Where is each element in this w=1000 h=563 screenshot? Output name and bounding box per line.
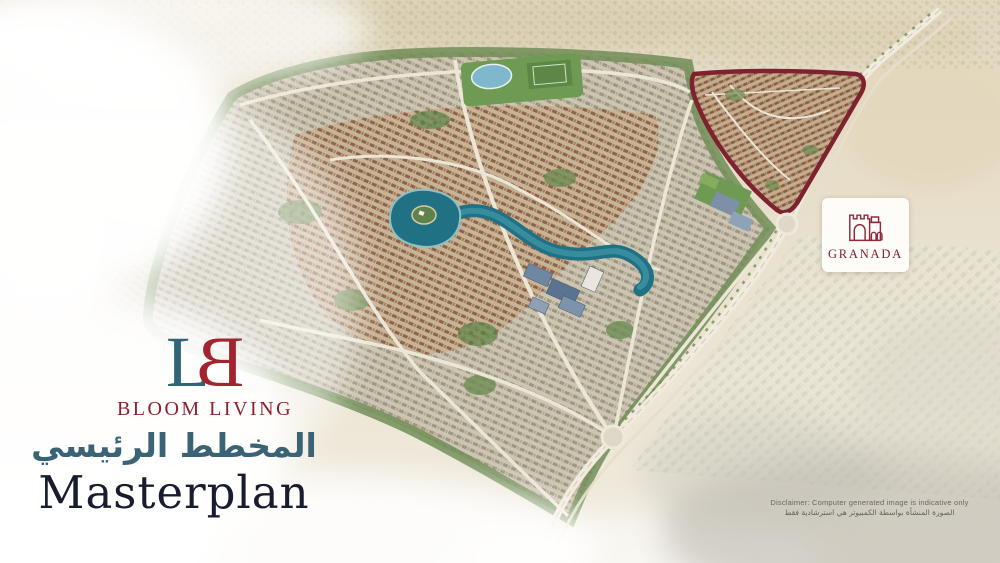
disclaimer-english: Disclaimer: Computer generated image is … bbox=[762, 498, 977, 507]
disclaimer-arabic: الصورة المنشأة بواسطة الكمبيوتر هي استرش… bbox=[762, 508, 977, 517]
granada-label: GRANADA bbox=[828, 247, 903, 262]
bloom-living-logo: LB BLOOM LIVING bbox=[110, 332, 300, 421]
monogram-letter-b: B bbox=[196, 332, 244, 392]
lake-island bbox=[412, 206, 436, 224]
masterplan-page: LB BLOOM LIVING المخطط الرئيسي Masterpla… bbox=[0, 0, 1000, 563]
disclaimer: Disclaimer: Computer generated image is … bbox=[762, 498, 977, 517]
alhambra-gate-icon bbox=[846, 208, 886, 244]
roundabout-main bbox=[602, 426, 624, 448]
granada-card[interactable]: GRANADA bbox=[822, 198, 909, 272]
bloom-living-monogram-icon: LB bbox=[110, 332, 300, 394]
roundabout-granada bbox=[777, 214, 797, 234]
masterplan-title-arabic: المخطط الرئيسي bbox=[14, 424, 334, 469]
title-block: المخطط الرئيسي Masterplan bbox=[14, 424, 334, 516]
masterplan-title-english: Masterplan bbox=[14, 469, 334, 516]
